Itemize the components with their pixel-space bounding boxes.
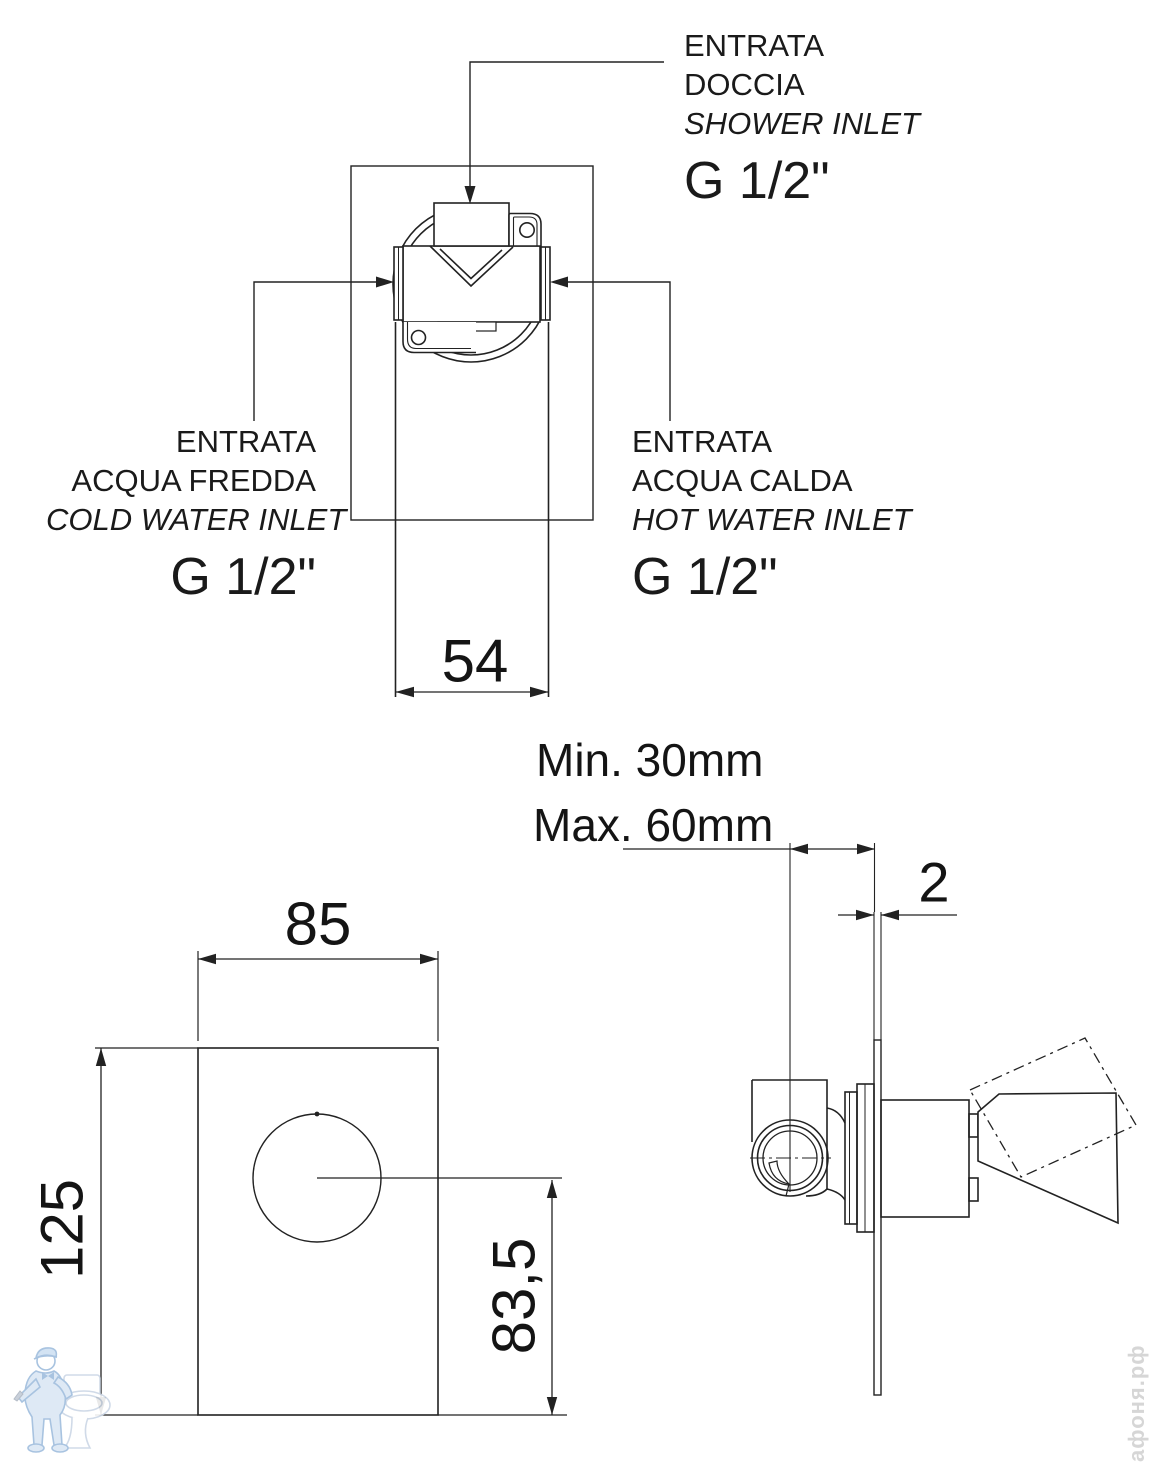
dim-plate-thickness: 2 [918, 850, 949, 915]
hot-inlet-arrow [550, 277, 568, 288]
valve-body-side [750, 1080, 845, 1200]
hot-inlet-label: ENTRATA ACQUA CALDA HOT WATER INLET G 1/… [632, 422, 912, 604]
plumber-logo-watermark [14, 1348, 110, 1452]
hot-label-line1: ENTRATA [632, 422, 912, 461]
shower-label-line2: DOCCIA [684, 65, 920, 104]
side-view-drawing [623, 843, 1136, 1395]
screw-hole-top [520, 223, 534, 237]
drawing-canvas [0, 0, 1152, 1462]
valve-body-top [403, 246, 540, 322]
plumber-shoe-left [28, 1444, 44, 1452]
site-watermark: афоня.рф [1124, 1344, 1150, 1462]
handle-side [978, 1093, 1118, 1223]
escutcheon-side [881, 1100, 969, 1217]
dim-85: 85 [285, 890, 352, 959]
shower-inlet-label: ENTRATA DOCCIA SHOWER INLET G 1/2" [684, 26, 920, 208]
shower-outlet-boss [434, 203, 509, 246]
dim-depth-max: Max. 60mm [533, 798, 773, 852]
hot-label-line2: ACQUA CALDA [632, 461, 912, 500]
shower-thread-size: G 1/2" [684, 154, 920, 208]
dim-83-5: 83,5 [480, 1238, 549, 1355]
shower-inlet-arrow [465, 186, 476, 204]
cold-inlet-arrow [376, 277, 394, 288]
cold-inlet-leader [254, 282, 377, 421]
hot-inlet-leader [567, 282, 670, 421]
handle-stub-top [969, 1114, 978, 1137]
screw-hole-bottom [412, 331, 426, 345]
shower-label-line3: SHOWER INLET [684, 104, 920, 143]
shower-inlet-leader [470, 62, 664, 187]
hot-label-line3: HOT WATER INLET [632, 500, 912, 539]
plumber-shoe-right [52, 1444, 68, 1452]
cover-plate-edge [874, 1040, 881, 1395]
cover-plate-front [198, 1048, 438, 1415]
technical-drawing-page: ENTRATA DOCCIA SHOWER INLET G 1/2" ENTRA… [0, 0, 1152, 1462]
top-view-drawing [254, 62, 670, 697]
cold-inlet-label: ENTRATA ACQUA FREDDA COLD WATER INLET G … [46, 422, 316, 604]
cold-label-line3: COLD WATER INLET [46, 500, 316, 539]
dim-54: 54 [442, 627, 509, 696]
toilet-base [64, 1417, 90, 1448]
cold-label-line2: ACQUA FREDDA [46, 461, 316, 500]
hot-thread-size: G 1/2" [632, 550, 912, 604]
cold-thread-size: G 1/2" [46, 550, 316, 604]
dim-125: 125 [28, 1179, 97, 1279]
dim-125-lines [96, 1048, 106, 1415]
shower-label-line1: ENTRATA [684, 26, 920, 65]
side-extension-lines [790, 843, 881, 1192]
handle-stub-bottom [969, 1178, 978, 1201]
cold-label-line1: ENTRATA [46, 422, 316, 461]
flange-rings-side [845, 1084, 874, 1232]
dim-depth-min: Min. 30mm [536, 733, 763, 787]
center-mark-dot [315, 1112, 320, 1117]
